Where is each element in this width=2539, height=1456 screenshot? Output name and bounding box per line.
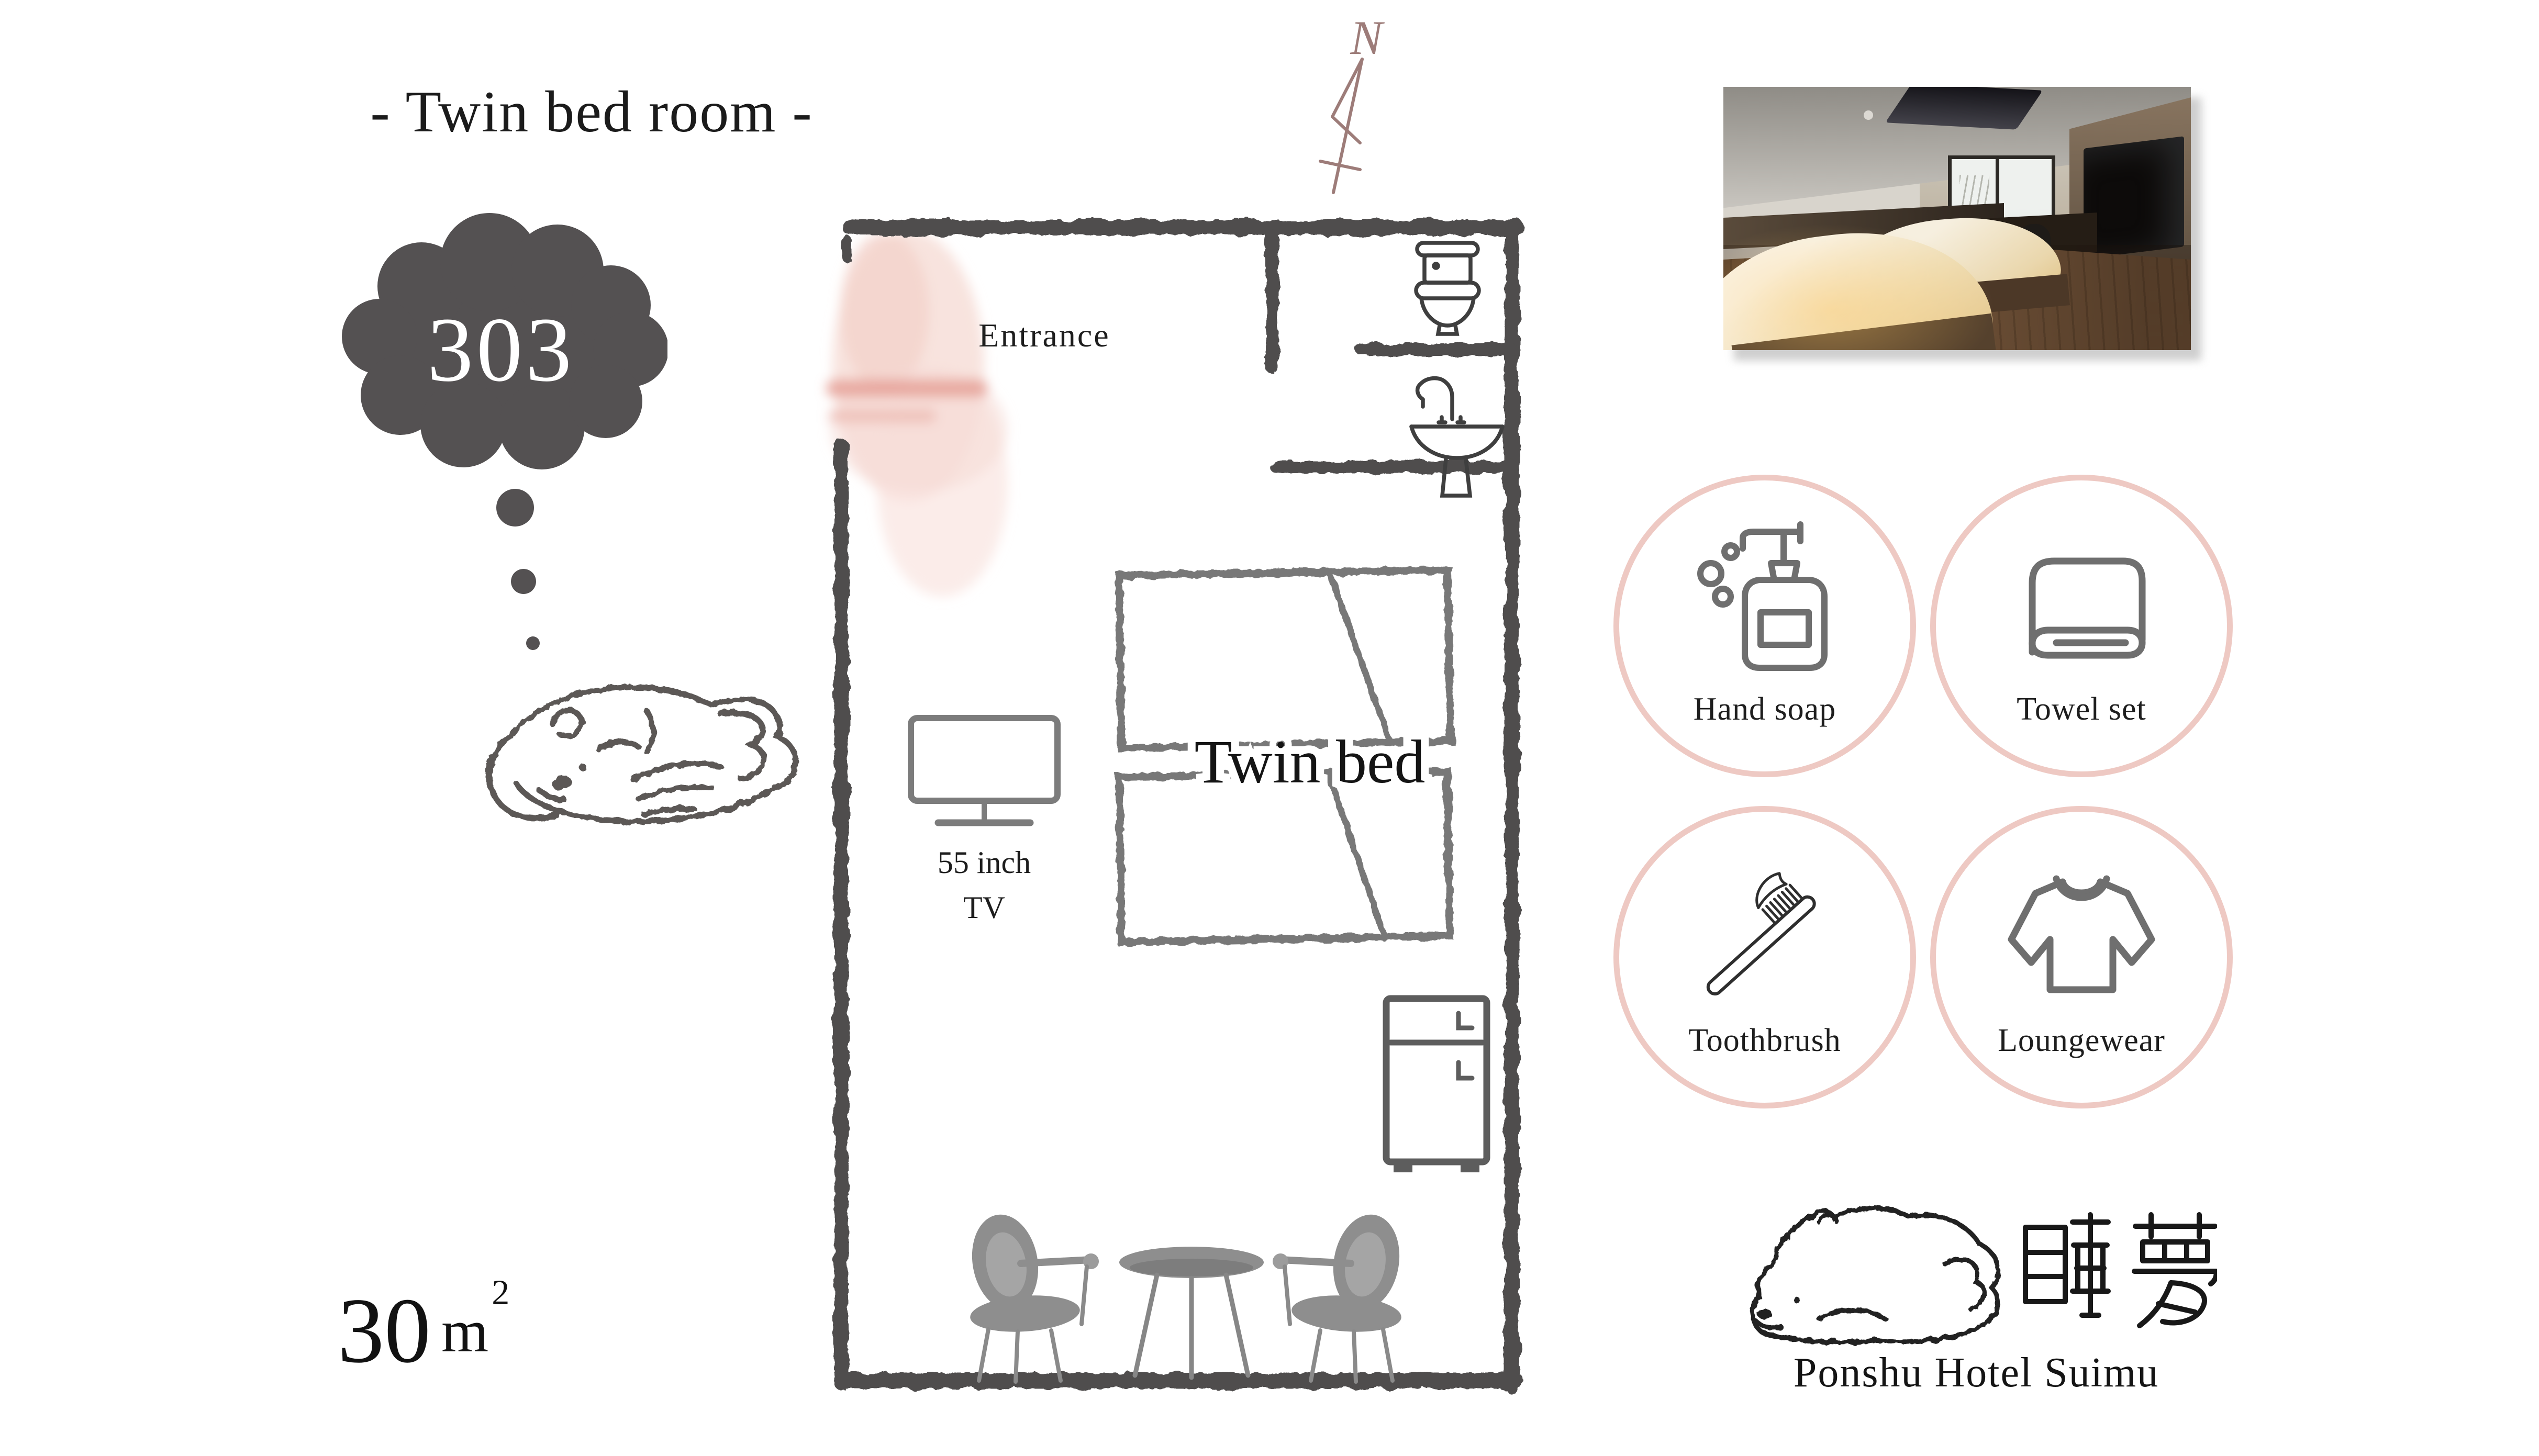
loungewear-shirt-icon (1992, 847, 2170, 1025)
room-area: 30m2 (338, 1272, 509, 1377)
area-value: 30 (338, 1279, 431, 1382)
twin-bed-label: Twin bed (1195, 727, 1426, 796)
photo-wall-tv (2084, 136, 2184, 259)
bed-2 (1119, 771, 1450, 942)
amenity-label: Loungewear (1936, 1022, 2227, 1059)
area-exponent: 2 (492, 1272, 509, 1312)
amenity-toothbrush: Toothbrush (1613, 806, 1916, 1108)
room-number-cloud: 303 (338, 207, 667, 479)
room-info-poster: - Twin bed room - 303 (0, 0, 2539, 1456)
tv-label-line1: 55 inch (938, 845, 1031, 880)
armchair-icon (965, 1209, 1099, 1382)
entrance-label: Entrance (978, 317, 1110, 354)
refrigerator-icon (1386, 999, 1487, 1172)
room-photo (1723, 87, 2191, 350)
hotel-name: Ponshu Hotel Suimu (1738, 1349, 2214, 1397)
round-table-icon (1119, 1247, 1264, 1377)
amenity-hand-soap: Hand soap (1613, 475, 1916, 777)
tv-icon (911, 718, 1057, 823)
bed-1-fold (1330, 573, 1390, 743)
tv-label-line2: TV (963, 890, 1005, 925)
amenity-towel-set: Towel set (1930, 475, 2233, 777)
amenity-label: Hand soap (1619, 691, 1910, 728)
toilet-icon (1416, 243, 1479, 334)
towel-icon (1998, 527, 2165, 694)
amenity-label: Toothbrush (1619, 1022, 1910, 1059)
page-title: - Twin bed room - (314, 79, 869, 146)
sleeping-bear-sketch-icon (474, 658, 809, 847)
logo-kanji-suimu (2018, 1206, 2217, 1332)
photo-ceiling-vent (1885, 87, 2043, 130)
amenity-loungewear: Loungewear (1930, 806, 2233, 1108)
soap-dispenser-icon (1681, 517, 1848, 685)
area-unit: m (441, 1298, 488, 1365)
compass-north-label: N (1350, 13, 1385, 64)
armchair-icon (1273, 1209, 1407, 1382)
entrance-watercolor (830, 230, 1008, 597)
sink-icon (1411, 378, 1502, 496)
bed-1 (1119, 570, 1451, 748)
toothbrush-icon (1665, 842, 1864, 1041)
north-compass-icon: N (1293, 13, 1440, 217)
amenity-label: Towel set (1936, 691, 2227, 728)
photo-lamp-glow (1723, 224, 1995, 350)
logo-sleeping-bear-icon (1741, 1201, 2008, 1353)
bed-2-fold (1329, 774, 1385, 939)
logo-kanji-text: 睡夢 (0, 0, 1, 1)
thought-trail-dots (487, 479, 560, 657)
room-number: 303 (427, 299, 575, 401)
floor-plan: Entrance 55 inch TV (811, 194, 1555, 1418)
